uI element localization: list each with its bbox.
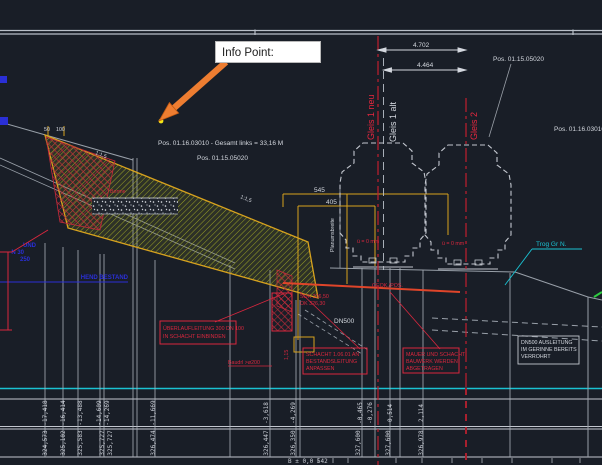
dist-value: -11,669 [150, 400, 157, 426]
elev-value: 325,727 [99, 430, 106, 456]
trog-label: Trog Gr N. [536, 241, 567, 248]
elev-value: 324,573 [42, 430, 49, 456]
elev-value: 325,583 [77, 430, 84, 456]
elev-value: 326,474 [150, 430, 157, 456]
pos-mid: Pos. 01.15.05020 [197, 155, 248, 162]
ueberlauf-line2: IN SCHACHT EINBINDEN [163, 334, 226, 340]
gravel-layer [92, 198, 178, 214]
dn500-line1: DN500 AUSLEITUNG [521, 340, 573, 346]
dist-value: -0,276 [367, 402, 374, 424]
elev-value: 326,350 [290, 430, 297, 456]
dim-50-label: 50 [44, 127, 50, 133]
cad-viewport: 50 100 1:1,5 1:1,5 Berme 545 405 Planums… [0, 0, 602, 465]
gleis2-label: Gleis 2 [469, 112, 479, 140]
dist-value: -14,269 [104, 400, 111, 426]
dim-4464-label: 4.464 [417, 62, 434, 69]
info-point-label: Info Point: [222, 47, 274, 59]
pos-gesamt: Pos. 01.16.03010 - Gesamt links = 33,16 … [158, 140, 283, 147]
sok-label-1: SOK 326,50 [300, 294, 329, 300]
sok-label-2: OK 326,30 [300, 301, 325, 307]
gleis1-alt-label: Gleis 1 alt [388, 101, 398, 142]
pipe-label: GEOK./POS. [372, 283, 403, 289]
elev-value: 325,727 [107, 430, 114, 456]
dim-4702-label: 4.702 [413, 42, 430, 49]
dn500-line3: VERROHRT [521, 354, 551, 360]
gleis1-neu-label: Gleis 1 neu [366, 94, 376, 140]
baudrl-label: Baudrl >ø200 [228, 360, 260, 366]
mauer-line1: MAUER UND SCHACHT [406, 352, 466, 358]
planum-label: Planumsbreite [330, 218, 336, 252]
dim-100-label: 100 [56, 127, 65, 133]
blue-marker-1 [0, 76, 7, 83]
pos-top-right: Pos. 01.15.05020 [493, 56, 544, 63]
blue-note-line3: 250 [20, 257, 31, 263]
dn500-pipe-label: DN500 [334, 318, 355, 325]
dist-value: -17,418 [42, 400, 49, 426]
dist-value: -13,488 [77, 400, 84, 426]
dim-405-label: 405 [326, 199, 337, 206]
blue-marker-2 [0, 117, 8, 125]
elev-value: 327,600 [355, 430, 362, 456]
schacht-line1: SCHACHT 1.06.01 AN [306, 352, 359, 358]
dist-value: -0,465 [357, 402, 364, 424]
dist-value: 2,114 [418, 404, 425, 422]
mauer-line2: BAUWERK WERDEN [406, 359, 458, 365]
dist-value: -4,269 [290, 402, 297, 424]
dist-value: -3,618 [263, 402, 270, 424]
blue-note-line4: HEND BESTAND [81, 275, 129, 281]
mauer-line3: ABGETRAGEN [406, 366, 443, 372]
elev-value: 326,447 [263, 430, 270, 456]
elev-value: 327,600 [385, 430, 392, 456]
bottom-micro-label: B ± 0,0 542 [288, 458, 328, 465]
dim-115-label: 1,15 [284, 350, 290, 360]
schacht-line2: BESTANDSLEITUNG [306, 359, 357, 365]
berme-label: Berme [110, 189, 126, 195]
dist-value: 0,514 [387, 404, 394, 422]
cad-drawing: 50 100 1:1,5 1:1,5 Berme 545 405 Planums… [0, 0, 602, 465]
dist-value: -16,414 [60, 400, 67, 426]
dim-545-label: 545 [314, 187, 325, 194]
ueberlauf-line1: ÜBERLAUFLEITUNG 300 DN 100 [163, 325, 244, 332]
elev-value: 325,102 [60, 430, 67, 456]
cant-label-2: ü = 0 mm [442, 241, 465, 247]
dist-value: -14,609 [96, 400, 103, 426]
elev-value: 326,978 [418, 430, 425, 456]
schacht-line3: ANPASSEN [306, 366, 335, 372]
pos-right-edge: Pos. 01.16.03010 - [554, 126, 602, 133]
cant-label-1: ü = 0 mm [357, 239, 380, 245]
dn500-line2: IM GERINNE BEREITS [521, 347, 577, 353]
schacht-outline [272, 293, 292, 331]
